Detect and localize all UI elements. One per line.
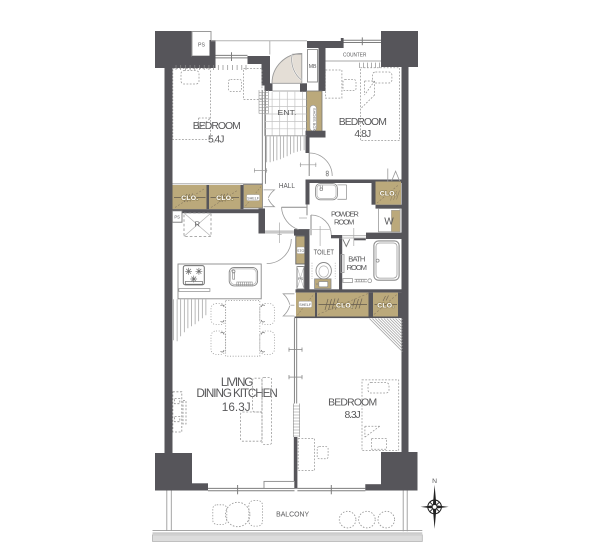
svg-text:BEDROOM: BEDROOM <box>328 398 377 409</box>
svg-text:N: N <box>432 478 437 485</box>
svg-text:SHELF: SHELF <box>247 196 260 200</box>
svg-text:CLO.: CLO. <box>181 195 198 202</box>
svg-text:ENT.: ENT. <box>277 108 296 117</box>
svg-text:R: R <box>195 219 201 228</box>
svg-text:ROOM: ROOM <box>347 263 367 272</box>
svg-text:ROOM: ROOM <box>334 217 354 226</box>
svg-text:SHELF: SHELF <box>299 303 312 307</box>
svg-text:W: W <box>384 216 394 227</box>
svg-text:CLO.: CLO. <box>380 191 397 198</box>
svg-text:DINING KITCHEN: DINING KITCHEN <box>196 387 277 400</box>
svg-text:BEDROOM: BEDROOM <box>339 117 387 128</box>
svg-text:STO: STO <box>297 249 305 253</box>
svg-text:BEDROOM: BEDROOM <box>193 121 241 132</box>
svg-text:COUNTER: COUNTER <box>343 52 367 58</box>
svg-text:TOILET: TOILET <box>314 247 335 256</box>
svg-text:CLO.: CLO. <box>216 195 233 202</box>
svg-text:CLO.: CLO. <box>336 303 353 310</box>
svg-text:BALCONY: BALCONY <box>276 510 309 519</box>
svg-text:CLO.: CLO. <box>377 303 394 310</box>
svg-text:8.3J: 8.3J <box>344 410 360 421</box>
svg-text:SHOES BOX: SHOES BOX <box>312 108 317 131</box>
svg-text:5.4J: 5.4J <box>208 134 225 145</box>
svg-text:HALL: HALL <box>279 181 295 190</box>
svg-text:PS: PS <box>174 215 180 220</box>
svg-text:PS: PS <box>298 276 304 281</box>
svg-text:PS: PS <box>198 43 205 49</box>
svg-text:4.8J: 4.8J <box>354 129 371 140</box>
svg-text:MB: MB <box>309 64 317 70</box>
